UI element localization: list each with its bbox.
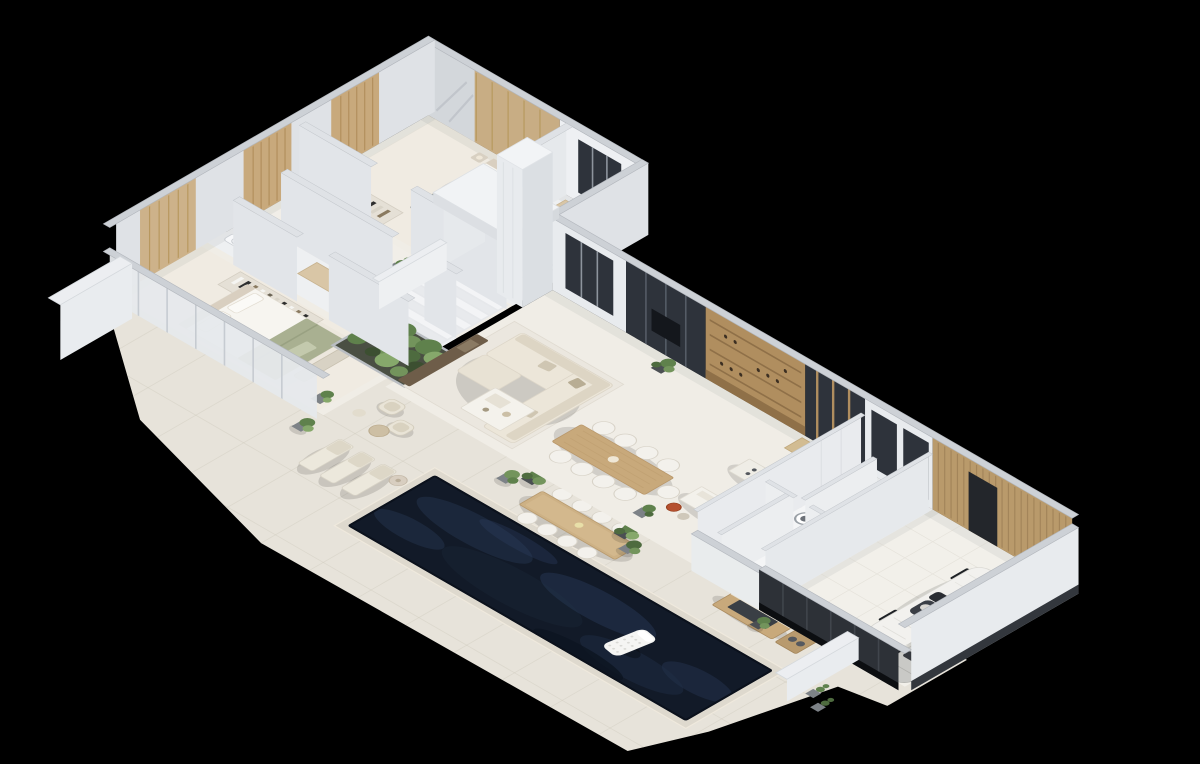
floorplan-render (0, 0, 1200, 764)
render-canvas (0, 0, 1200, 764)
stair-tower (497, 137, 553, 307)
